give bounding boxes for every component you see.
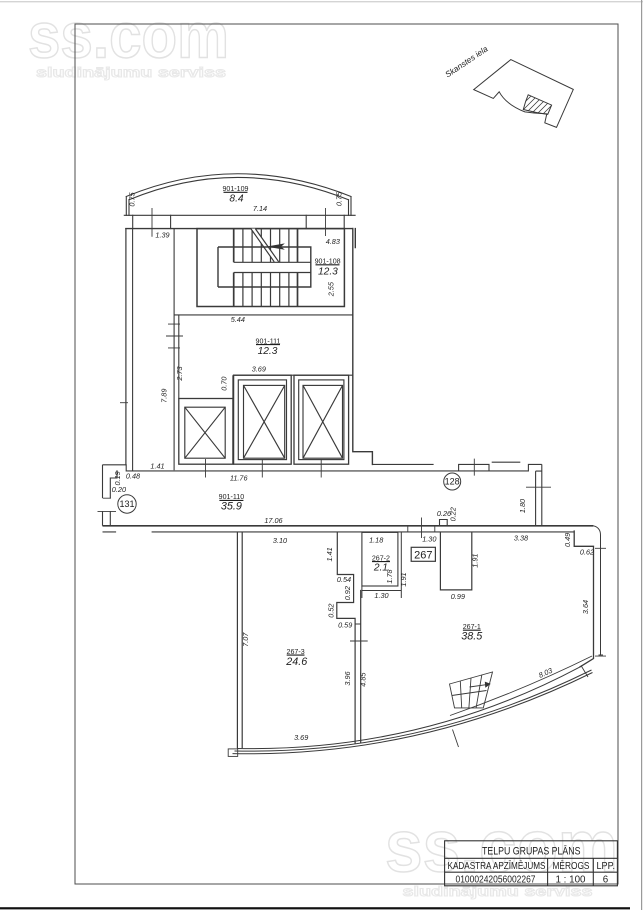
svg-text:0.20: 0.20 — [112, 485, 126, 494]
svg-text:7.89: 7.89 — [160, 389, 169, 403]
svg-text:3.38: 3.38 — [514, 534, 529, 543]
svg-text:4.83: 4.83 — [326, 237, 340, 246]
svg-text:ss.com: ss.com — [28, 0, 229, 72]
svg-text:8.4: 8.4 — [229, 194, 243, 205]
svg-text:0.49: 0.49 — [563, 533, 572, 547]
svg-text:TELPU GRUPAS PLĀNS: TELPU GRUPAS PLĀNS — [482, 845, 581, 857]
svg-text:1.78: 1.78 — [385, 568, 394, 583]
svg-text:128: 128 — [445, 477, 460, 487]
svg-text:0.52: 0.52 — [326, 603, 335, 617]
svg-text:3.64: 3.64 — [581, 600, 590, 614]
svg-text:2.73: 2.73 — [175, 366, 184, 381]
svg-text:KADASTRA APZĪMĒJUMS: KADASTRA APZĪMĒJUMS — [448, 860, 546, 872]
svg-text:11.76: 11.76 — [230, 473, 249, 482]
svg-text:131: 131 — [119, 499, 134, 509]
svg-text:1.91: 1.91 — [399, 572, 408, 586]
svg-text:24.6: 24.6 — [285, 656, 307, 668]
svg-text:1.41: 1.41 — [325, 547, 334, 561]
svg-text:1 : 100: 1 : 100 — [556, 875, 587, 886]
svg-text:0.70: 0.70 — [220, 376, 229, 390]
svg-text:0.19: 0.19 — [113, 471, 122, 485]
svg-text:3.96: 3.96 — [343, 670, 352, 685]
svg-text:0.75: 0.75 — [335, 191, 344, 206]
svg-text:0.62: 0.62 — [580, 548, 594, 557]
svg-text:sludinājumu serviss: sludinājumu serviss — [36, 64, 226, 80]
svg-text:0.54: 0.54 — [337, 575, 351, 584]
svg-text:38.5: 38.5 — [461, 631, 483, 643]
svg-text:1.91: 1.91 — [471, 553, 480, 567]
svg-text:1.41: 1.41 — [150, 461, 164, 470]
svg-text:LPP.: LPP. — [597, 861, 616, 872]
svg-text:0.22: 0.22 — [448, 507, 457, 521]
svg-text:267: 267 — [414, 550, 432, 562]
svg-text:3.69: 3.69 — [294, 733, 308, 742]
svg-text:01000242056002267: 01000242056002267 — [456, 875, 536, 886]
svg-text:1.30: 1.30 — [374, 591, 388, 600]
svg-text:3.69: 3.69 — [252, 365, 266, 374]
svg-text:35.9: 35.9 — [221, 501, 242, 513]
svg-text:0.48: 0.48 — [126, 472, 141, 481]
svg-text:2.55: 2.55 — [327, 281, 336, 297]
svg-text:0.99: 0.99 — [451, 592, 465, 601]
svg-text:0.92: 0.92 — [343, 586, 352, 600]
svg-text:6: 6 — [603, 875, 609, 886]
svg-text:12.3: 12.3 — [318, 266, 338, 277]
svg-text:12.3: 12.3 — [258, 346, 278, 357]
svg-text:5.44: 5.44 — [231, 315, 245, 324]
svg-text:1.39: 1.39 — [155, 231, 169, 240]
svg-text:MĒROGS: MĒROGS — [553, 860, 590, 872]
svg-text:0.59: 0.59 — [338, 620, 352, 629]
svg-text:1.30: 1.30 — [422, 534, 436, 543]
svg-text:7.14: 7.14 — [253, 204, 267, 213]
svg-text:3.10: 3.10 — [273, 536, 287, 545]
svg-text:4.85: 4.85 — [359, 672, 368, 687]
svg-text:7.07: 7.07 — [241, 632, 250, 647]
svg-text:17.06: 17.06 — [264, 516, 283, 525]
svg-text:1.80: 1.80 — [518, 499, 527, 513]
svg-text:1.18: 1.18 — [369, 536, 384, 545]
svg-text:0.75: 0.75 — [128, 191, 137, 206]
